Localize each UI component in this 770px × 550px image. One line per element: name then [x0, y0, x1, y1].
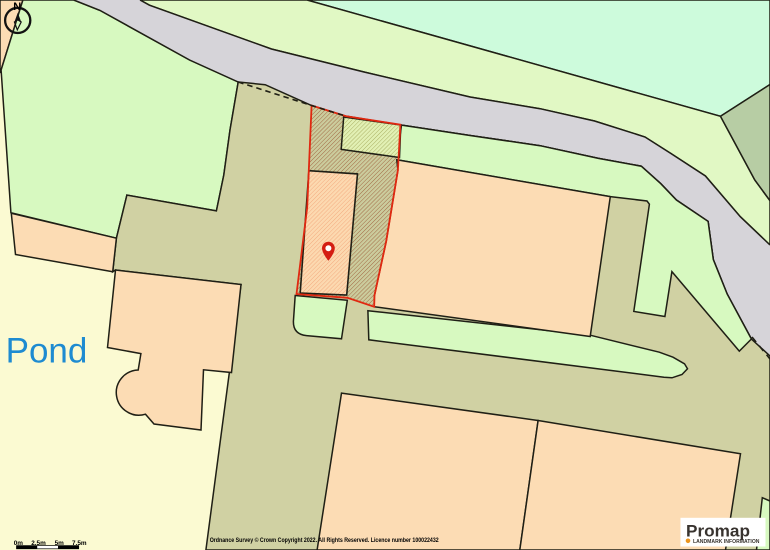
svg-text:5m: 5m [55, 540, 65, 547]
svg-text:N: N [13, 1, 21, 13]
svg-text:LANDMARK INFORMATION: LANDMARK INFORMATION [693, 539, 760, 545]
svg-text:0m: 0m [14, 540, 24, 547]
svg-text:Pond: Pond [6, 332, 88, 371]
svg-text:7.5m: 7.5m [72, 540, 87, 547]
svg-text:Promap: Promap [686, 522, 750, 541]
svg-text:Ordnance Survey © Crown Copyri: Ordnance Survey © Crown Copyright 2022. … [210, 536, 439, 544]
svg-text:2.5m: 2.5m [31, 540, 46, 547]
